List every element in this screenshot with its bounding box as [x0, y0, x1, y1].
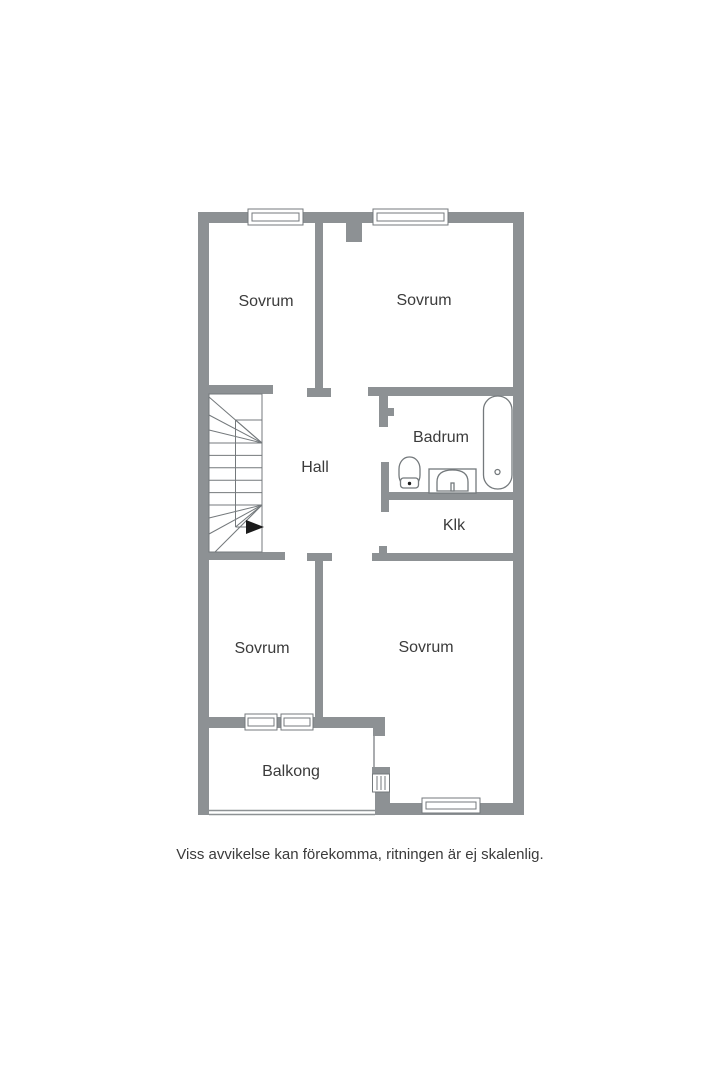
room-label-klk: Klk: [443, 517, 466, 534]
wall-upper-center-cap: [307, 388, 331, 397]
window-icon: [422, 798, 480, 813]
room-label-sovrum-top-right: Sovrum: [396, 292, 451, 309]
room-label-hall: Hall: [301, 459, 329, 476]
disclaimer-text: Viss avvikelse kan förekomma, ritningen …: [0, 846, 720, 863]
room-label-sovrum-bottom-right: Sovrum: [398, 639, 453, 656]
room-label-balkong: Balkong: [262, 763, 320, 780]
window-icon: [373, 774, 390, 792]
wall-lower-center: [315, 561, 323, 717]
window-icon: [245, 714, 277, 730]
window-icon: [281, 714, 313, 730]
toilet-icon: [399, 457, 420, 488]
room-labels: Sovrum Sovrum Hall Badrum Klk Sovrum Sov…: [234, 292, 469, 780]
room-label-badrum: Badrum: [413, 429, 469, 446]
room-label-sovrum-top-left: Sovrum: [238, 293, 293, 310]
wall-bathroom-left-upper: [379, 396, 388, 427]
wall-stair-bottom: [198, 552, 285, 560]
wall-bathroom-left-lower: [381, 462, 389, 512]
bathtub-icon: [484, 396, 513, 489]
wall-top: [198, 212, 524, 223]
wall-bathroom-door-jamb: [388, 408, 394, 416]
wall-lower-center-cap: [307, 553, 332, 561]
stairs-icon: [209, 394, 264, 552]
wall-stair-top: [198, 385, 273, 394]
chimney: [346, 223, 362, 242]
wall-klk-tab: [379, 546, 387, 554]
wall-right: [513, 212, 524, 815]
wall-bathroom-top: [368, 387, 513, 396]
wall-klk-bottom: [372, 553, 524, 561]
sink-icon: [429, 469, 476, 493]
wall-balcony-corner-upper: [373, 728, 385, 736]
wall-upper-center: [315, 223, 323, 389]
floor-plan-page: Sovrum Sovrum Hall Badrum Klk Sovrum Sov…: [0, 0, 720, 1080]
room-label-sovrum-bottom-left: Sovrum: [234, 640, 289, 657]
floor-plan-drawing: Sovrum Sovrum Hall Badrum Klk Sovrum Sov…: [0, 0, 720, 1080]
window-icon: [248, 209, 303, 225]
window-icon: [373, 209, 448, 225]
